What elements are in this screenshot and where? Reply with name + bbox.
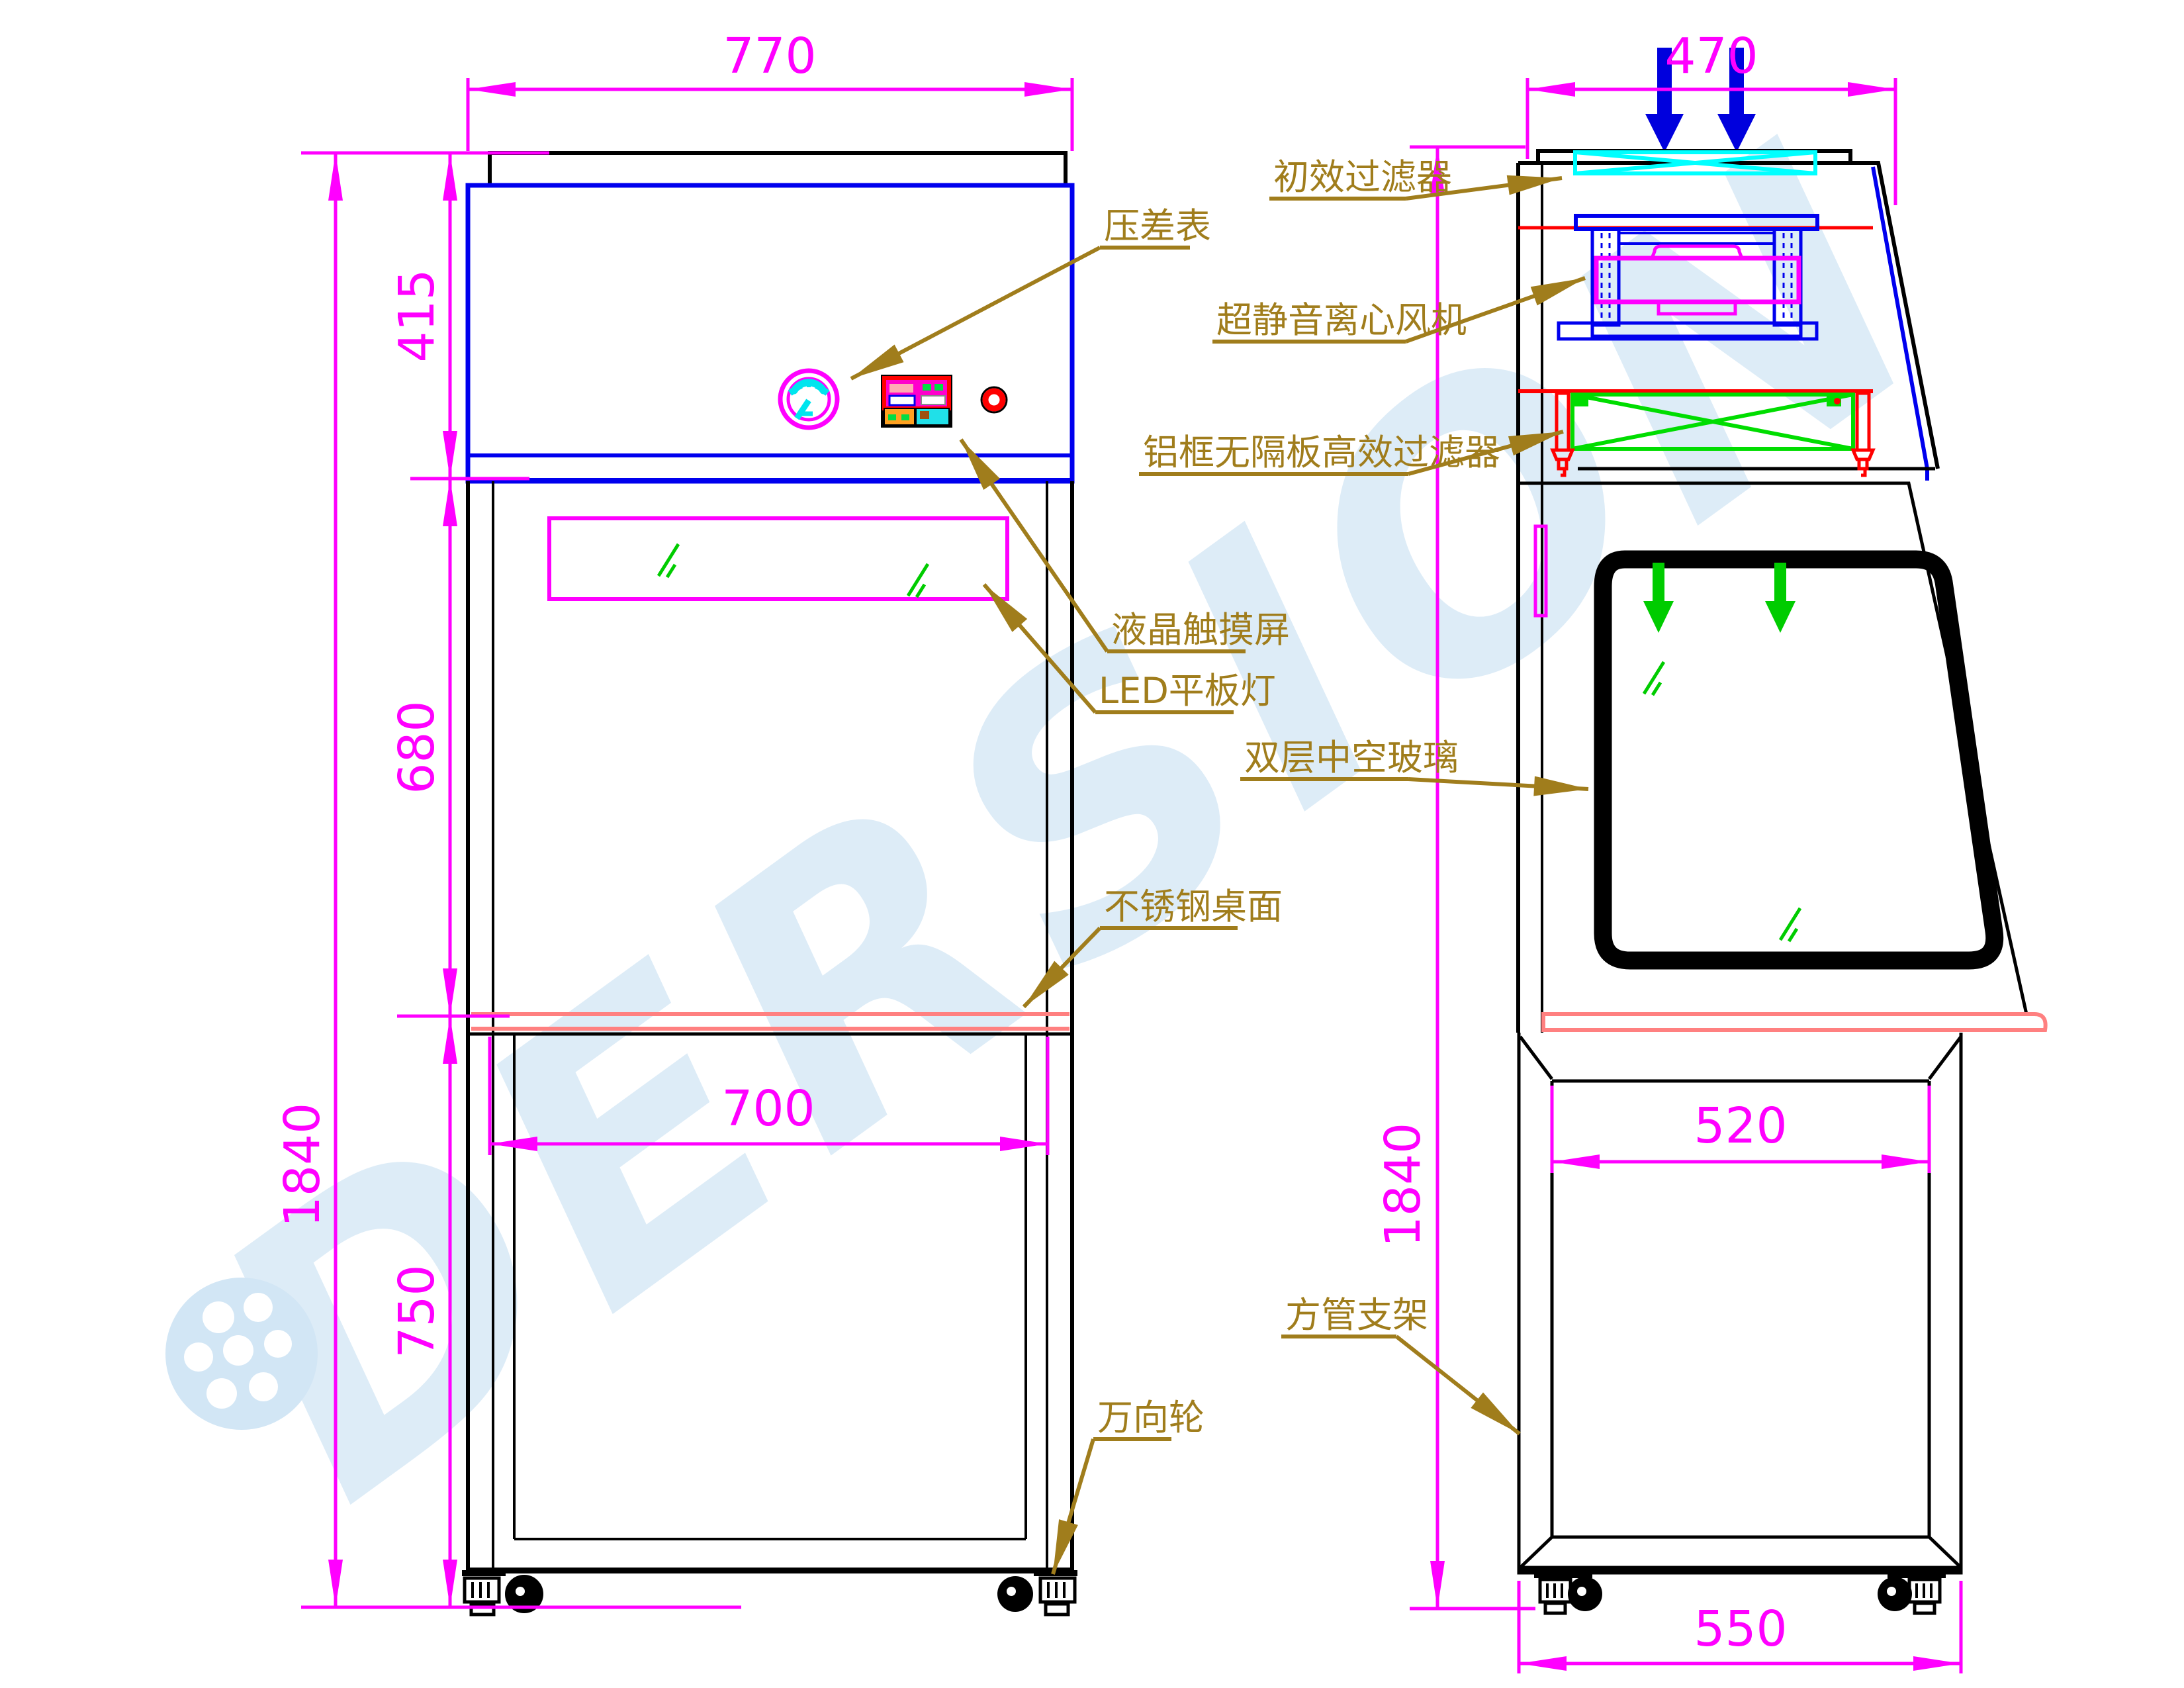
dim-side-total-height: 1840 <box>1375 1123 1432 1247</box>
pressure-gauge <box>780 371 837 428</box>
dim-stand-inner-width: 520 <box>1694 1098 1787 1154</box>
dim-side-width: 470 <box>1664 28 1758 85</box>
front-bottom-rail <box>468 1568 1072 1573</box>
dim-front-chamber-height: 680 <box>388 700 445 794</box>
dim-worktop-width: 700 <box>721 1080 815 1137</box>
cad-drawing-page: DERSION <box>0 0 2184 1688</box>
label-primary-filter: 初效过滤器 <box>1273 156 1452 198</box>
label-stainless-worktop: 不锈钢桌面 <box>1104 886 1283 927</box>
power-button <box>981 387 1007 412</box>
label-pressure-gauge: 压差表 <box>1104 205 1211 247</box>
glass-reflection-marks-side <box>1644 662 1800 941</box>
clean-bench-two-view-drawing: DERSION <box>0 0 2184 1688</box>
side-worktop-edge <box>1543 1014 2046 1030</box>
dim-front-total-height: 1840 <box>274 1103 331 1227</box>
label-silent-fan: 超静音离心风机 <box>1216 299 1467 341</box>
dim-front-stand-height: 750 <box>388 1264 445 1358</box>
label-hepa-filter: 铝框无隔板高效过滤器 <box>1143 432 1500 473</box>
leader-stand <box>1396 1336 1520 1434</box>
glass-reflection-marks-front <box>659 544 928 597</box>
label-caster-wheel: 万向轮 <box>1097 1397 1205 1438</box>
watermark-logo-dots <box>165 1278 318 1430</box>
dim-front-top-height: 415 <box>388 269 445 362</box>
front-right-caster <box>997 1570 1077 1615</box>
side-right-caster <box>1878 1573 1946 1613</box>
leader-pressure-gauge <box>851 248 1100 379</box>
front-head-box <box>468 185 1072 481</box>
label-square-tube-stand: 方管支架 <box>1285 1294 1428 1336</box>
dim-front-width: 770 <box>723 28 816 85</box>
side-left-caster <box>1534 1573 1602 1613</box>
label-double-glass: 双层中空玻璃 <box>1244 737 1459 778</box>
label-led-panel-light: LED平板灯 <box>1099 670 1276 712</box>
front-top-cap <box>490 153 1066 185</box>
led-lamp-window <box>549 518 1007 599</box>
label-lcd-touchscreen: 液晶触摸屏 <box>1111 609 1290 651</box>
dim-base-width: 550 <box>1694 1601 1787 1658</box>
lcd-touchscreen <box>882 376 951 426</box>
